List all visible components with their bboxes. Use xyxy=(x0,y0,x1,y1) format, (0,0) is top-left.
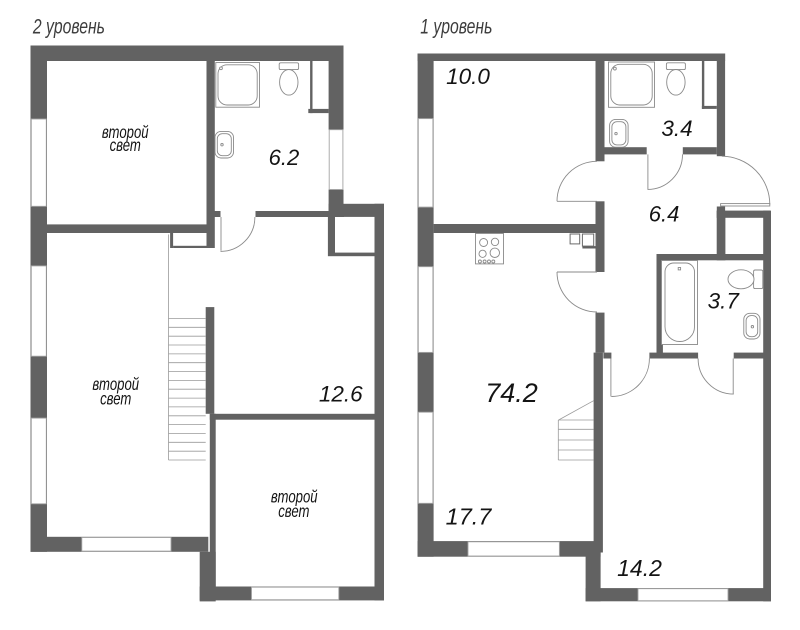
svg-text:6.2: 6.2 xyxy=(269,145,300,170)
svg-text:14.2: 14.2 xyxy=(617,555,662,581)
svg-text:12.6: 12.6 xyxy=(319,382,363,407)
svg-text:3.7: 3.7 xyxy=(708,289,741,314)
svg-text:свет: свет xyxy=(278,502,309,521)
svg-text:2 уровень: 2 уровень xyxy=(32,14,105,38)
svg-text:1 уровень: 1 уровень xyxy=(420,14,492,38)
svg-text:74.2: 74.2 xyxy=(485,378,538,408)
svg-text:6.4: 6.4 xyxy=(649,202,680,227)
svg-text:10.0: 10.0 xyxy=(446,64,490,89)
svg-text:свет: свет xyxy=(100,390,131,409)
svg-text:17.7: 17.7 xyxy=(446,503,493,529)
svg-text:3.4: 3.4 xyxy=(661,116,692,141)
svg-text:свет: свет xyxy=(110,136,141,155)
